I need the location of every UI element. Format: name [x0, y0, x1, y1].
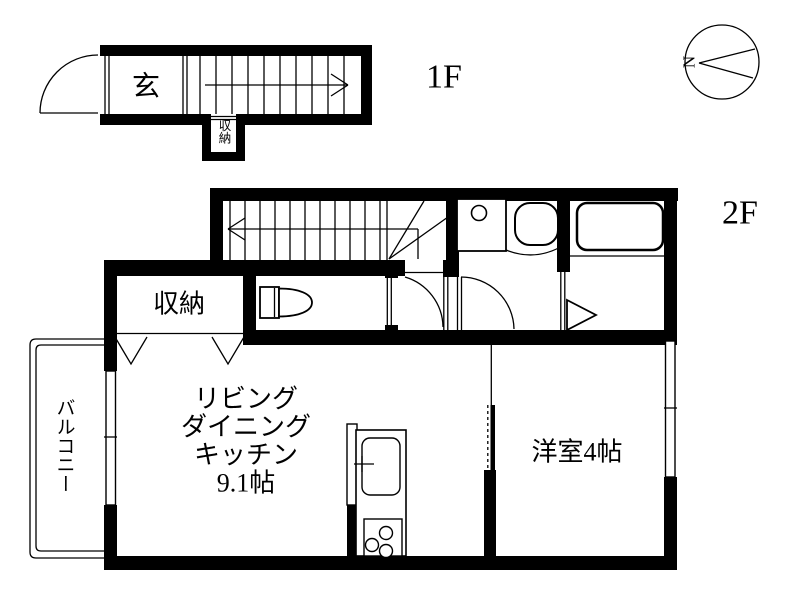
stairs-1f: [200, 56, 348, 114]
stairs-down-arrow-2f: [228, 218, 418, 259]
ldk-label-line4: 9.1帖: [217, 469, 276, 498]
storage-2f-label: 収納: [153, 290, 205, 319]
stove-icon: [364, 519, 402, 558]
western-room-window-icon: [664, 341, 677, 477]
storage-2f-doors-icon: [115, 334, 244, 365]
storage-1f-label: 収納: [217, 119, 231, 144]
toilet-icon: [260, 287, 312, 318]
kitchen-unit-icon: [347, 424, 406, 558]
ldk-label-line2: ダイニング: [181, 413, 311, 442]
balcony-label: バルコニー: [54, 398, 75, 493]
washroom-door-icon: [458, 277, 515, 330]
bathtub-icon: [570, 203, 664, 256]
western-room-label: 洋室4帖: [531, 438, 622, 467]
ldk-label-line3: キッチン: [194, 441, 298, 470]
floor-2f-title: 2F: [722, 195, 758, 232]
floorplan-2f: 収納 リビング ダイニング キッチン 9.1帖 洋室4帖 バルコニー 2F: [30, 188, 758, 570]
compass-icon: N: [680, 25, 760, 99]
stairs-up-arrow-1f: [205, 74, 348, 96]
floorplan-1f: 玄 収納 1F: [40, 45, 462, 161]
stairs-2f: [228, 201, 448, 260]
genkan-label: 玄: [132, 71, 160, 103]
floor-plan-page: 玄 収納 1F N: [0, 0, 800, 600]
compass-north-label: N: [680, 56, 699, 68]
balcony-window-icon: [104, 371, 117, 505]
washbasin-icon: [506, 203, 564, 255]
bath-folding-door-icon: [561, 272, 596, 330]
floor-1f-title: 1F: [426, 59, 462, 96]
entrance-door-icon: [40, 55, 98, 113]
ldk-label-line1: リビング: [194, 385, 298, 414]
toilet-door-icon: [387, 278, 391, 325]
washing-machine-pan-icon: [457, 199, 506, 251]
hall-door-icon: [405, 273, 448, 331]
floor-plan-drawing: 玄 収納 1F N: [0, 0, 800, 600]
